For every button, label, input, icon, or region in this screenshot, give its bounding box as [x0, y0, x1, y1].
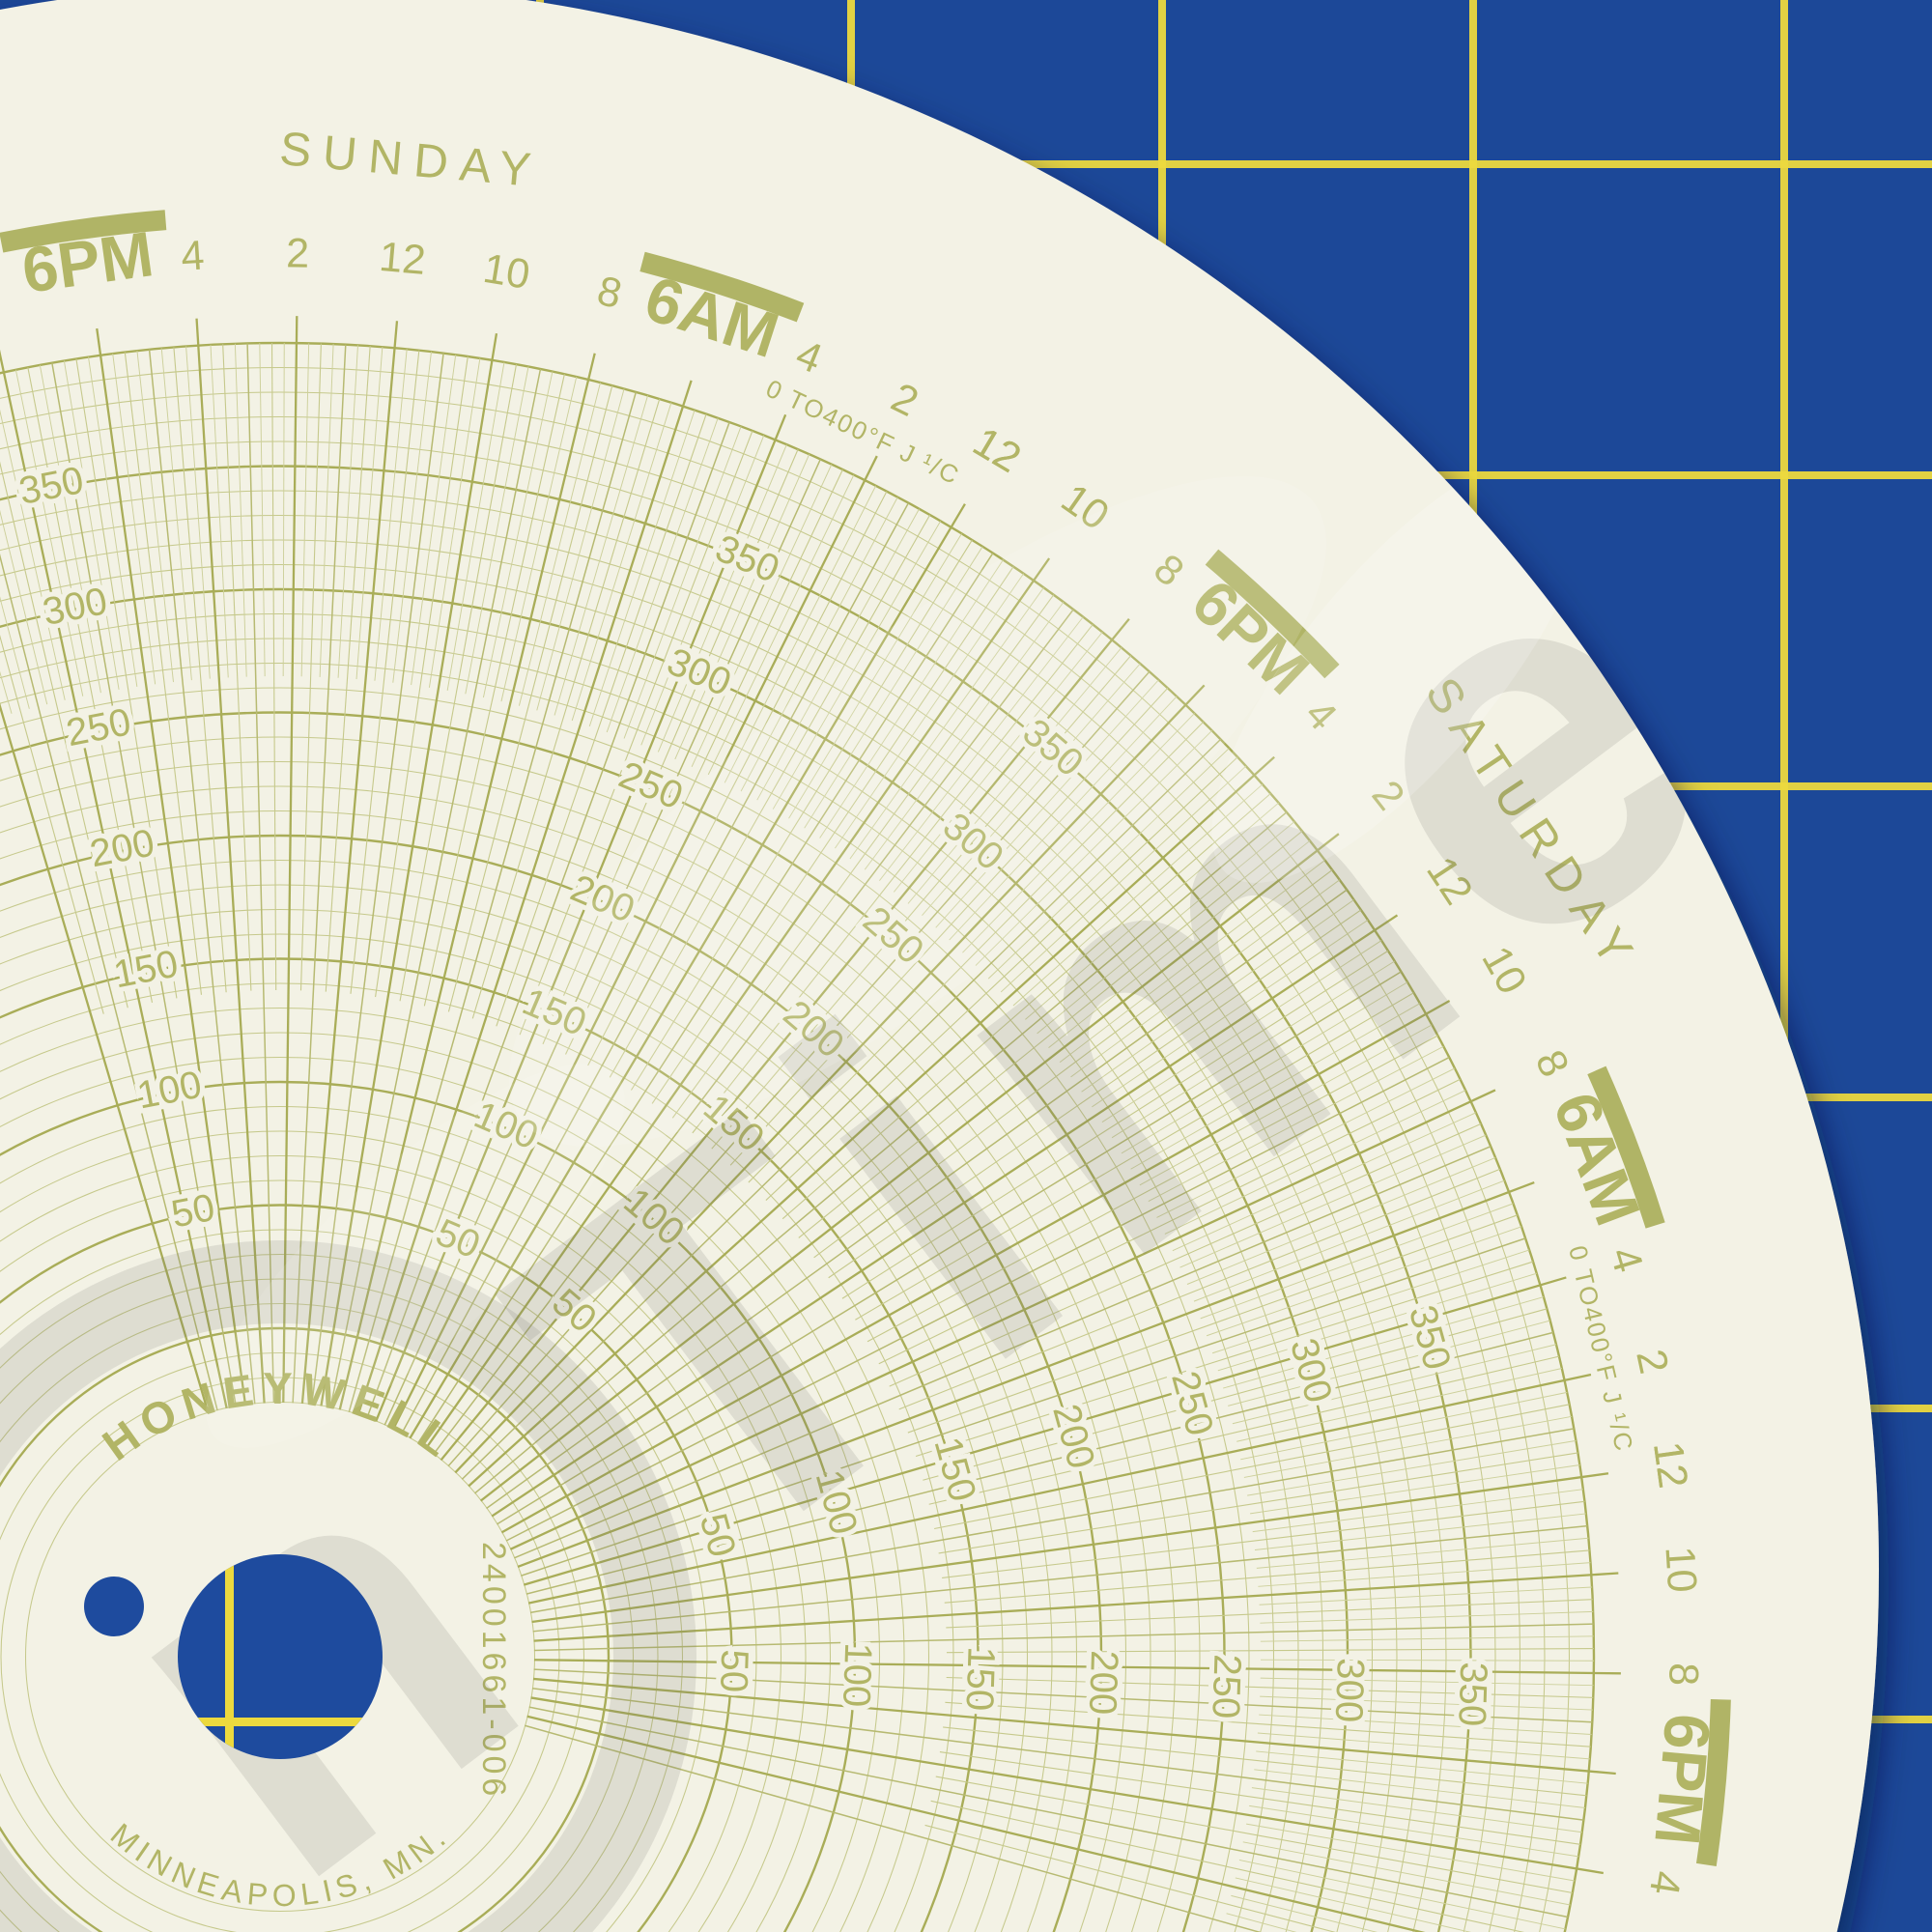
rim-label-hour: 8 [1660, 1662, 1706, 1687]
rim-label-hour: 12 [378, 234, 428, 284]
scale-number: 300 [1327, 1658, 1372, 1723]
rim-label-hour: 12 [1644, 1439, 1696, 1492]
rim-label-hour: 10 [480, 245, 533, 298]
rim-label-hour: 4 [180, 232, 206, 279]
drive-hole [84, 1577, 144, 1636]
scale-number: 50 [168, 1186, 218, 1236]
rim-label-hour: 2 [286, 230, 310, 276]
rim-label-hour: 10 [1656, 1545, 1705, 1594]
photo-canvas: 5010015020025030035050100150200250300350… [0, 0, 1932, 1932]
scale-number: 150 [958, 1646, 1003, 1712]
scale-number: 350 [1450, 1662, 1494, 1727]
scale-number: 100 [835, 1642, 879, 1708]
scale-number: 250 [1204, 1654, 1248, 1719]
scale-number: 200 [1081, 1650, 1125, 1716]
center-hole [178, 1554, 383, 1759]
mat-line-in-hole [225, 1554, 234, 1759]
mat-line-in-hole [178, 1718, 383, 1726]
photo-of-chart-paper-on-cutting-mat: 5010015020025030035050100150200250300350… [0, 0, 1932, 1932]
